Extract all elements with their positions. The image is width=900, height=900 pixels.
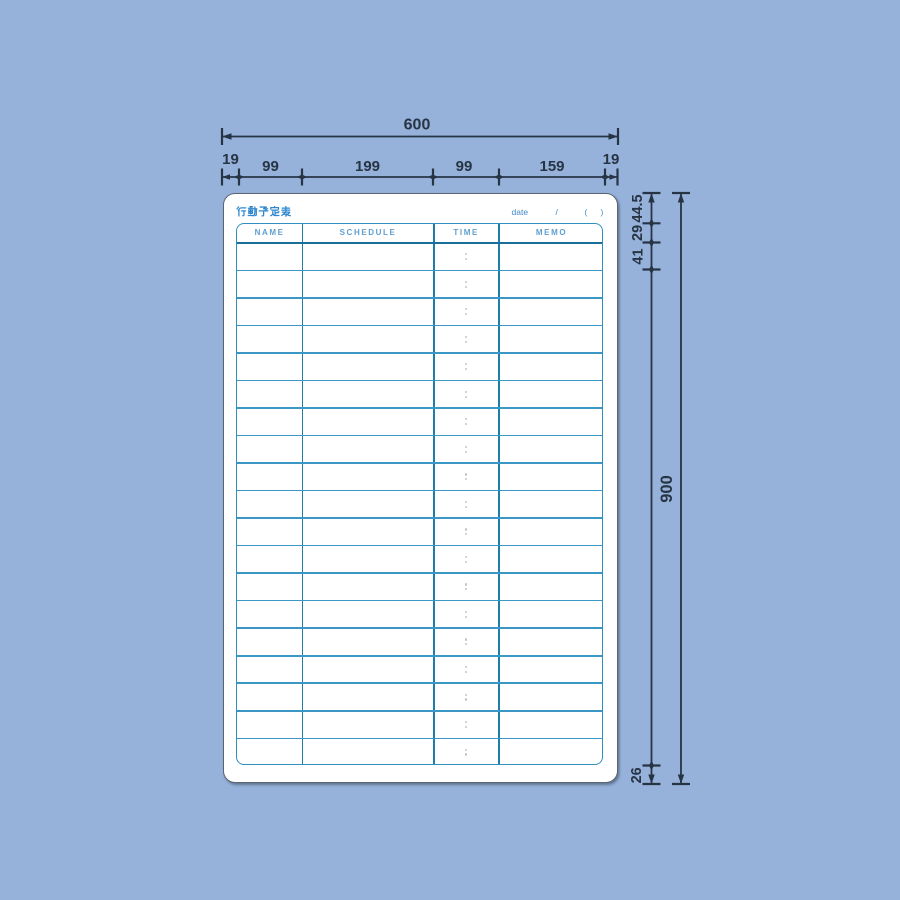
svg-text:99: 99	[262, 158, 279, 175]
svg-text:19: 19	[603, 151, 620, 168]
svg-text:199: 199	[355, 158, 380, 175]
svg-text:19: 19	[222, 151, 239, 168]
svg-text:44.5: 44.5	[630, 194, 646, 222]
svg-text:99: 99	[456, 158, 473, 175]
svg-text:900: 900	[658, 475, 676, 503]
svg-text:159: 159	[539, 158, 564, 175]
svg-text:41: 41	[631, 248, 647, 264]
svg-text:26: 26	[629, 767, 645, 783]
svg-text:29: 29	[630, 225, 646, 241]
svg-text:600: 600	[404, 117, 431, 134]
